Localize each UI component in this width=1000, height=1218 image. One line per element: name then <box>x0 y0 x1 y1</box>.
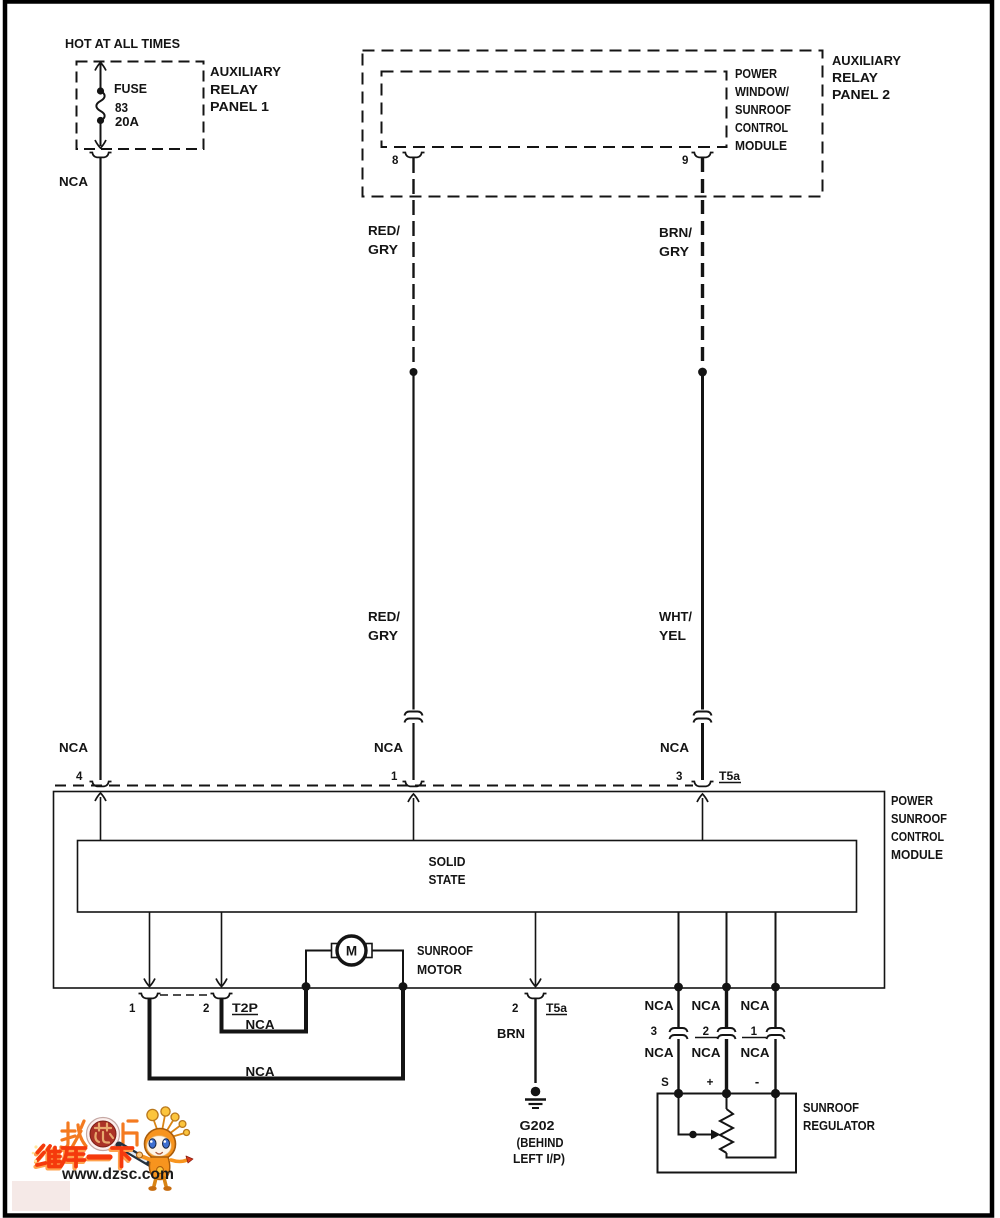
svg-text:NCA: NCA <box>741 1045 771 1060</box>
svg-text:T5a: T5a <box>546 1001 567 1015</box>
svg-text:GRY: GRY <box>659 244 689 259</box>
svg-text:T2P: T2P <box>232 1001 258 1015</box>
svg-text:SUNROOF: SUNROOF <box>891 811 947 826</box>
svg-text:LEFT I/P): LEFT I/P) <box>513 1151 565 1166</box>
svg-text:1: 1 <box>391 771 398 783</box>
svg-text:3: 3 <box>651 1026 657 1038</box>
svg-text:GRY: GRY <box>368 242 398 257</box>
svg-text:G202: G202 <box>520 1118 555 1133</box>
svg-text:AUXILIARY: AUXILIARY <box>210 64 281 79</box>
svg-text:2: 2 <box>512 1003 518 1015</box>
svg-text:SUNROOF: SUNROOF <box>735 102 791 117</box>
svg-text:AUXILIARY: AUXILIARY <box>832 53 901 68</box>
svg-text:M: M <box>346 944 357 959</box>
svg-text:NCA: NCA <box>59 174 89 189</box>
svg-text:4: 4 <box>76 771 83 783</box>
svg-text:WINDOW/: WINDOW/ <box>735 84 789 99</box>
svg-text:NCA: NCA <box>59 740 89 755</box>
svg-text:POWER: POWER <box>735 66 778 81</box>
svg-text:RELAY: RELAY <box>210 82 258 97</box>
svg-text:NCA: NCA <box>246 1064 276 1079</box>
svg-text:WHT/: WHT/ <box>659 609 692 624</box>
svg-text:T5a: T5a <box>719 769 740 783</box>
svg-text:8: 8 <box>392 155 399 167</box>
svg-text:CONTROL: CONTROL <box>735 120 788 135</box>
svg-text:2: 2 <box>703 1026 709 1038</box>
svg-text:STATE: STATE <box>429 872 466 887</box>
svg-text:PANEL 2: PANEL 2 <box>832 87 890 102</box>
svg-text:(BEHIND: (BEHIND <box>517 1135 564 1150</box>
svg-text:1: 1 <box>129 1003 136 1015</box>
svg-text:3: 3 <box>676 771 682 783</box>
svg-text:www.dzsc.com: www.dzsc.com <box>61 1166 174 1183</box>
svg-text:RELAY: RELAY <box>832 70 878 85</box>
svg-text:FUSE: FUSE <box>114 81 147 96</box>
svg-text:RED/: RED/ <box>368 609 400 624</box>
svg-text:SUNROOF: SUNROOF <box>803 1100 859 1115</box>
svg-text:NCA: NCA <box>645 998 675 1013</box>
svg-text:MOTOR: MOTOR <box>417 962 463 977</box>
svg-text:RED/: RED/ <box>368 223 400 238</box>
svg-text:2: 2 <box>203 1003 209 1015</box>
svg-text:POWER: POWER <box>891 793 934 808</box>
svg-text:9: 9 <box>682 155 688 167</box>
svg-text:+: + <box>707 1077 714 1089</box>
svg-text:NCA: NCA <box>741 998 771 1013</box>
svg-text:NCA: NCA <box>660 740 690 755</box>
svg-text:NCA: NCA <box>692 998 722 1013</box>
svg-text:SOLID: SOLID <box>429 854 466 869</box>
svg-text:BRN: BRN <box>497 1026 525 1041</box>
svg-text:REGULATOR: REGULATOR <box>803 1118 876 1133</box>
svg-text:YEL: YEL <box>659 628 686 643</box>
svg-text:-: - <box>755 1074 759 1089</box>
svg-text:1: 1 <box>751 1026 758 1038</box>
svg-text:HOT AT ALL TIMES: HOT AT ALL TIMES <box>65 36 180 51</box>
svg-text:NCA: NCA <box>692 1045 722 1060</box>
svg-text:GRY: GRY <box>368 628 398 643</box>
svg-text:PANEL 1: PANEL 1 <box>210 99 269 114</box>
svg-text:BRN/: BRN/ <box>659 225 692 240</box>
svg-text:20A: 20A <box>115 114 140 129</box>
svg-text:NCA: NCA <box>246 1017 276 1032</box>
svg-text:S: S <box>661 1077 669 1089</box>
svg-text:83: 83 <box>115 100 128 115</box>
svg-text:NCA: NCA <box>645 1045 675 1060</box>
svg-text:NCA: NCA <box>374 740 404 755</box>
svg-text:SUNROOF: SUNROOF <box>417 943 473 958</box>
svg-text:CONTROL: CONTROL <box>891 829 944 844</box>
svg-text:MODULE: MODULE <box>735 138 787 153</box>
svg-text:MODULE: MODULE <box>891 847 943 862</box>
